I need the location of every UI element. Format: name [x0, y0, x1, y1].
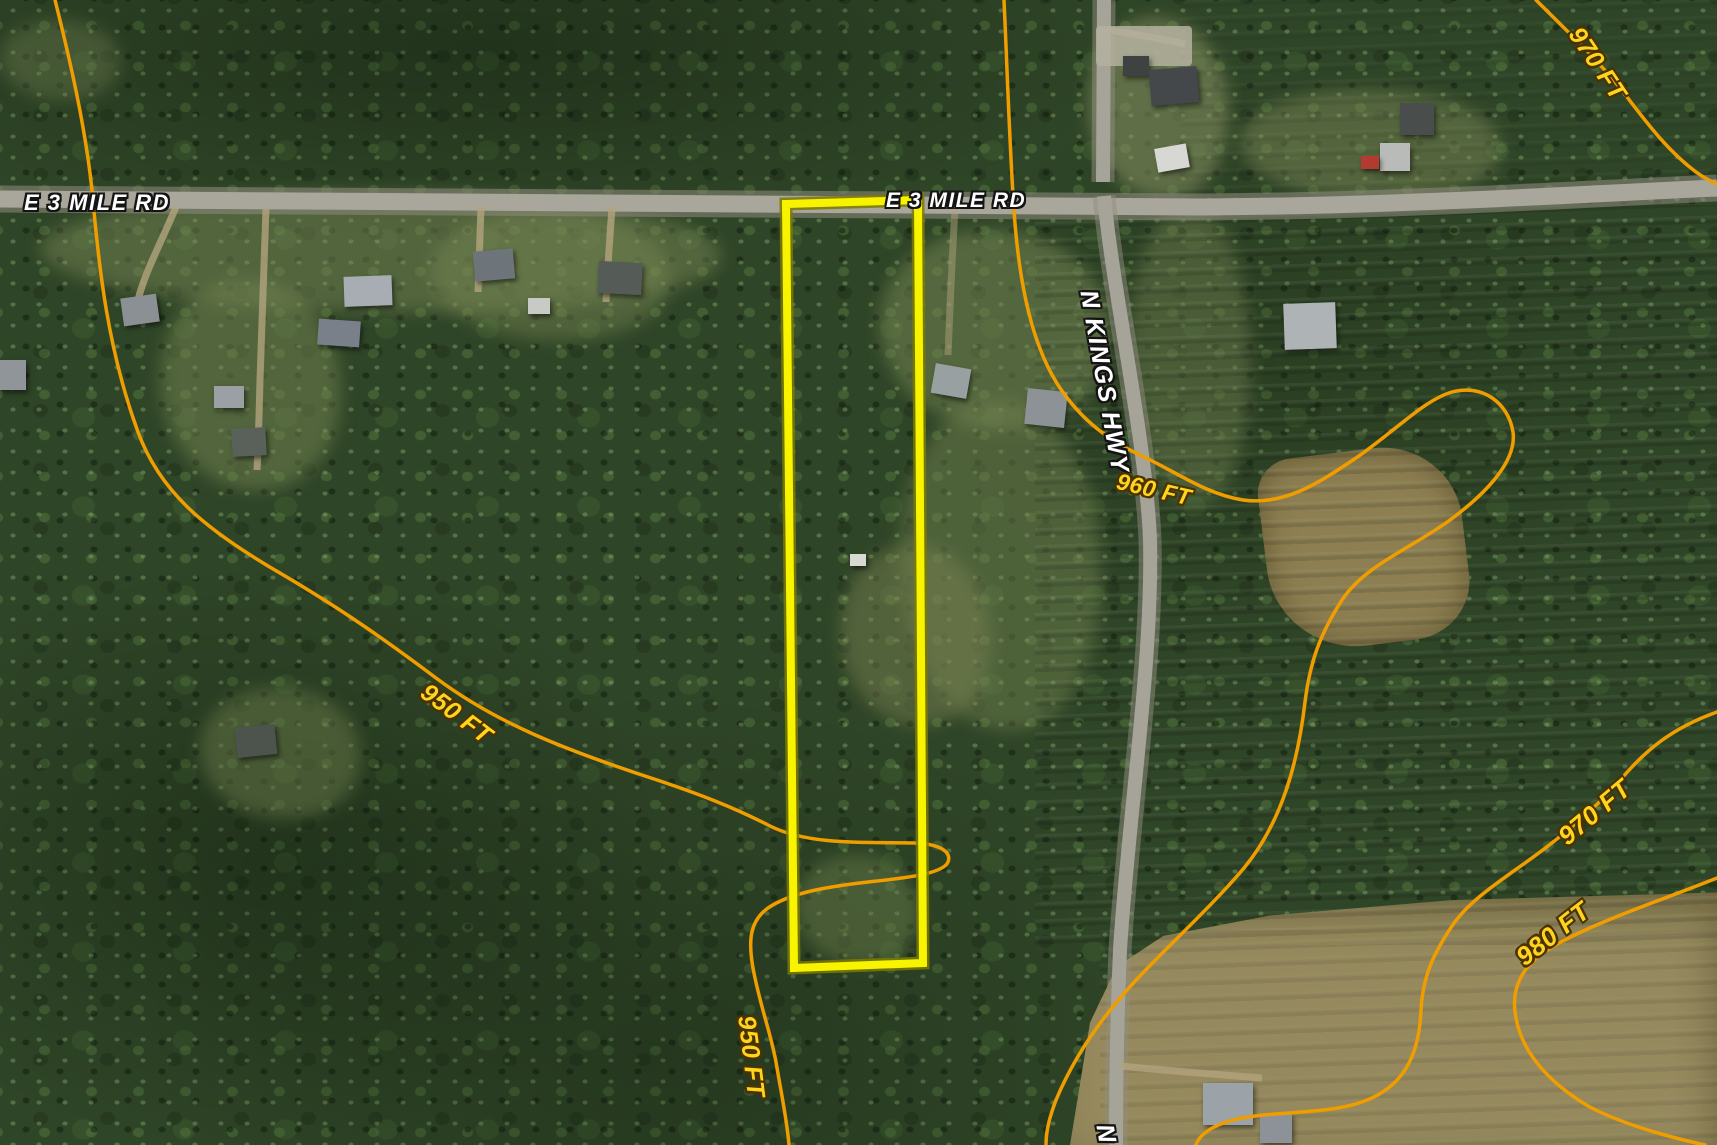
contour-960 [1004, 0, 1513, 1145]
parcel-boundary[interactable] [786, 200, 923, 968]
road-label-e3mile-left: E 3 MILE RD [24, 190, 170, 216]
elevation-contours [55, 0, 1717, 1145]
contour-970-right [1196, 712, 1717, 1145]
road-label-e3mile-center: E 3 MILE RD [886, 189, 1026, 213]
contours-parcel-layer [0, 0, 1717, 1145]
aerial-map-viewport[interactable]: E 3 MILE RD E 3 MILE RD N KINGS HWY N KI… [0, 0, 1717, 1145]
contour-980 [1515, 878, 1717, 1145]
